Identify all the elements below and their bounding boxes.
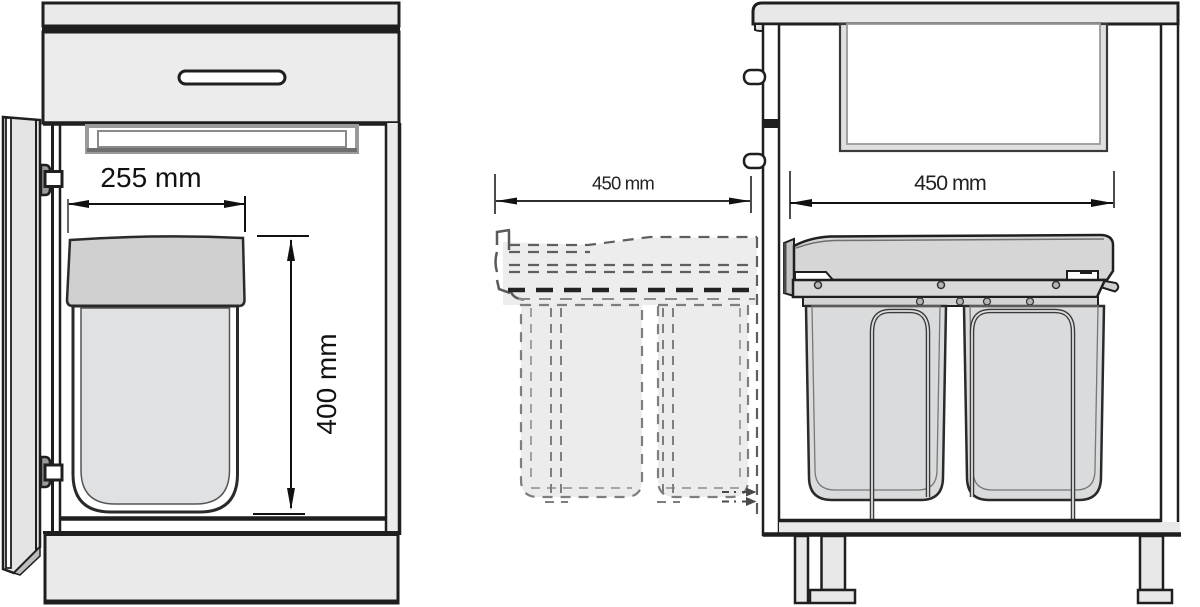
svg-text:450 mm: 450 mm — [592, 173, 654, 194]
svg-text:450 mm: 450 mm — [914, 171, 986, 195]
svg-text:400 mm: 400 mm — [311, 333, 342, 434]
svg-text:255 mm: 255 mm — [100, 162, 201, 193]
